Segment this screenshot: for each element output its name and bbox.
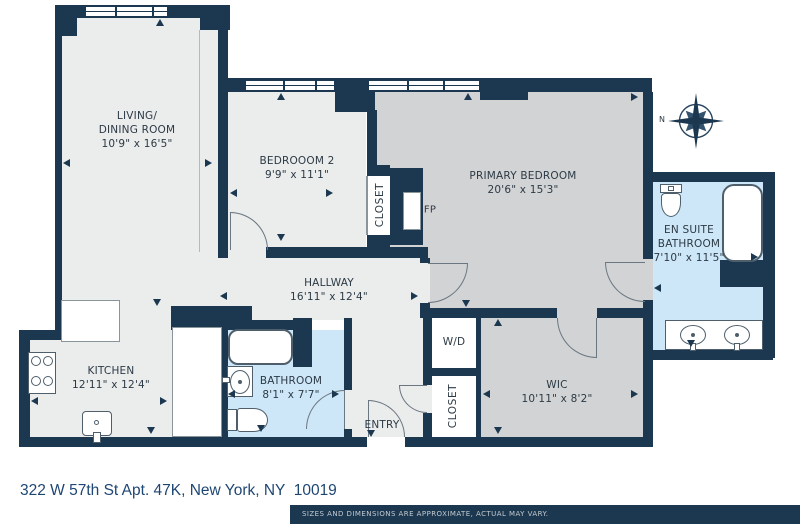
- dimension-arrow: [687, 340, 695, 347]
- sink-drain: [94, 420, 99, 425]
- wall: [55, 5, 62, 338]
- room-dims: 10'11" x 8'2": [521, 393, 592, 407]
- stove-burner: [31, 376, 41, 386]
- window: [85, 6, 168, 17]
- wall: [643, 318, 653, 447]
- sink-faucet: [734, 343, 740, 351]
- primary-bedroom-label: PRIMARY BEDROOM 20'6" x 15'3": [469, 170, 576, 198]
- dimension-arrow: [228, 390, 235, 398]
- dimension-arrow: [654, 284, 661, 292]
- wall: [335, 88, 375, 112]
- partition-line: [199, 30, 200, 252]
- window-frame: [86, 11, 167, 12]
- sink-faucet: [93, 432, 101, 443]
- window: [245, 80, 335, 91]
- dimension-arrow: [494, 427, 502, 434]
- wall: [480, 78, 528, 100]
- room-name: PRIMARY BEDROOM: [469, 170, 576, 184]
- compass-rose-icon: [664, 90, 728, 152]
- sink-drain: [691, 333, 695, 337]
- washer-dryer-label: W/D: [443, 336, 466, 350]
- fireplace-label: FP: [424, 203, 436, 216]
- room-name: BATHROOM: [653, 238, 724, 252]
- window-mullion: [115, 7, 117, 16]
- room-dims: 8'1" x 7'7": [260, 389, 322, 403]
- dimension-arrow: [230, 189, 237, 197]
- dimension-arrow: [464, 93, 472, 100]
- wall: [648, 350, 773, 360]
- wall: [423, 437, 653, 447]
- bedroom2-closet-label: CLOSET: [374, 183, 386, 227]
- bedroom2-label: BEDROOOM 2 9'9" x 11'1": [259, 155, 334, 183]
- stove-burner: [43, 376, 53, 386]
- dimension-arrow: [346, 96, 353, 104]
- dimension-arrow: [147, 427, 155, 434]
- room-dims: 12'11" x 12'4": [72, 379, 150, 393]
- dimension-arrow: [277, 234, 285, 241]
- wall: [428, 308, 643, 318]
- window-mullion: [315, 81, 317, 90]
- room-name: DINING ROOM: [99, 124, 176, 138]
- room-name: BATHROOM: [260, 375, 322, 389]
- dimension-arrow: [751, 253, 758, 261]
- wall: [19, 437, 367, 447]
- dimension-arrow: [153, 299, 161, 306]
- wall: [367, 235, 390, 247]
- entry-closet-label: CLOSET: [447, 384, 459, 428]
- kitchen-label: KITCHEN 12'11" x 12'4": [72, 365, 150, 393]
- utility-column: [172, 327, 222, 437]
- window: [368, 80, 480, 91]
- dimension-arrow: [483, 390, 490, 398]
- room-name: WIC: [521, 379, 592, 393]
- disclaimer-text: SIZES AND DIMENSIONS ARE APPROXIMATE, AC…: [290, 505, 800, 524]
- dimension-arrow: [160, 397, 167, 405]
- window-mullion: [407, 81, 409, 90]
- room-name: EN SUITE: [653, 224, 724, 238]
- hallway-label: HALLWAY 16'11" x 12'4": [290, 277, 368, 305]
- stove-burner: [43, 356, 53, 366]
- dimension-arrow: [277, 93, 285, 100]
- wall: [763, 172, 775, 358]
- room-dims: 7'10" x 11'5": [653, 252, 724, 266]
- room-name: BEDROOOM 2: [259, 155, 334, 169]
- window-mullion: [152, 7, 154, 16]
- wall: [720, 260, 763, 287]
- sink-drain: [735, 333, 739, 337]
- dimension-arrow: [332, 390, 339, 398]
- wall: [377, 165, 390, 176]
- entry-door-opening: [367, 437, 405, 447]
- wall: [423, 318, 432, 437]
- window-mullion: [283, 81, 285, 90]
- dimension-arrow: [257, 425, 265, 432]
- window-frame: [246, 85, 334, 86]
- door-opening: [557, 308, 597, 318]
- dimension-arrow: [411, 292, 418, 300]
- room-dims: 10'9" x 16'5": [99, 138, 176, 152]
- dimension-arrow: [326, 189, 333, 197]
- room-dims: 9'9" x 11'1": [259, 169, 334, 183]
- wall: [200, 5, 230, 30]
- dimension-arrow: [63, 159, 70, 167]
- room-name: HALLWAY: [290, 277, 368, 291]
- room-name: LIVING/: [99, 110, 176, 124]
- dimension-arrow: [205, 159, 212, 167]
- window-mullion: [443, 81, 445, 90]
- room-dims: 16'11" x 12'4": [290, 291, 368, 305]
- dimension-arrow: [494, 319, 502, 326]
- dimension-arrow: [220, 292, 227, 300]
- wall: [218, 30, 228, 258]
- bathtub: [722, 184, 763, 262]
- wall: [432, 368, 477, 376]
- window-frame: [369, 85, 479, 86]
- bathroom-label: BATHROOM 8'1" x 7'7": [260, 375, 322, 403]
- wall: [643, 172, 775, 182]
- address-line: 322 W 57th St Apt. 47K, New York, NY 100…: [20, 482, 337, 499]
- dimension-arrow: [156, 19, 164, 26]
- closet-door-track: [366, 176, 368, 235]
- wall: [476, 318, 481, 447]
- ensuite-label: EN SUITE BATHROOM 7'10" x 11'5": [653, 224, 724, 266]
- dimension-arrow: [687, 173, 695, 180]
- fireplace-box: [403, 192, 421, 230]
- room-name: KITCHEN: [72, 365, 150, 379]
- room-dims: 20'6" x 15'3": [469, 184, 576, 198]
- living-room-label: LIVING/ DINING ROOM 10'9" x 16'5": [99, 110, 176, 152]
- sink-drain: [238, 380, 242, 384]
- wic-label: WIC 10'11" x 8'2": [521, 379, 592, 407]
- floor-plan: N LIVING/ DINING ROOM 10'9" x 16'5" BEDR…: [0, 0, 800, 524]
- wall: [293, 318, 312, 367]
- toilet-tank: [227, 409, 237, 431]
- dimension-arrow: [31, 397, 38, 405]
- disclaimer-bar: SIZES AND DIMENSIONS ARE APPROXIMATE, AC…: [290, 505, 800, 524]
- sink-faucet: [222, 377, 230, 383]
- entry-label: ENTRY: [365, 419, 400, 433]
- kitchen-counter: [61, 300, 120, 342]
- stove-burner: [31, 356, 41, 366]
- compass-north-label: N: [659, 115, 665, 124]
- wall: [367, 110, 377, 176]
- door-opening: [345, 390, 352, 429]
- bathtub: [228, 329, 293, 365]
- dimension-arrow: [462, 300, 470, 307]
- dimension-arrow: [631, 390, 638, 398]
- toilet-tank-button: [668, 186, 674, 191]
- dimension-arrow: [631, 93, 638, 101]
